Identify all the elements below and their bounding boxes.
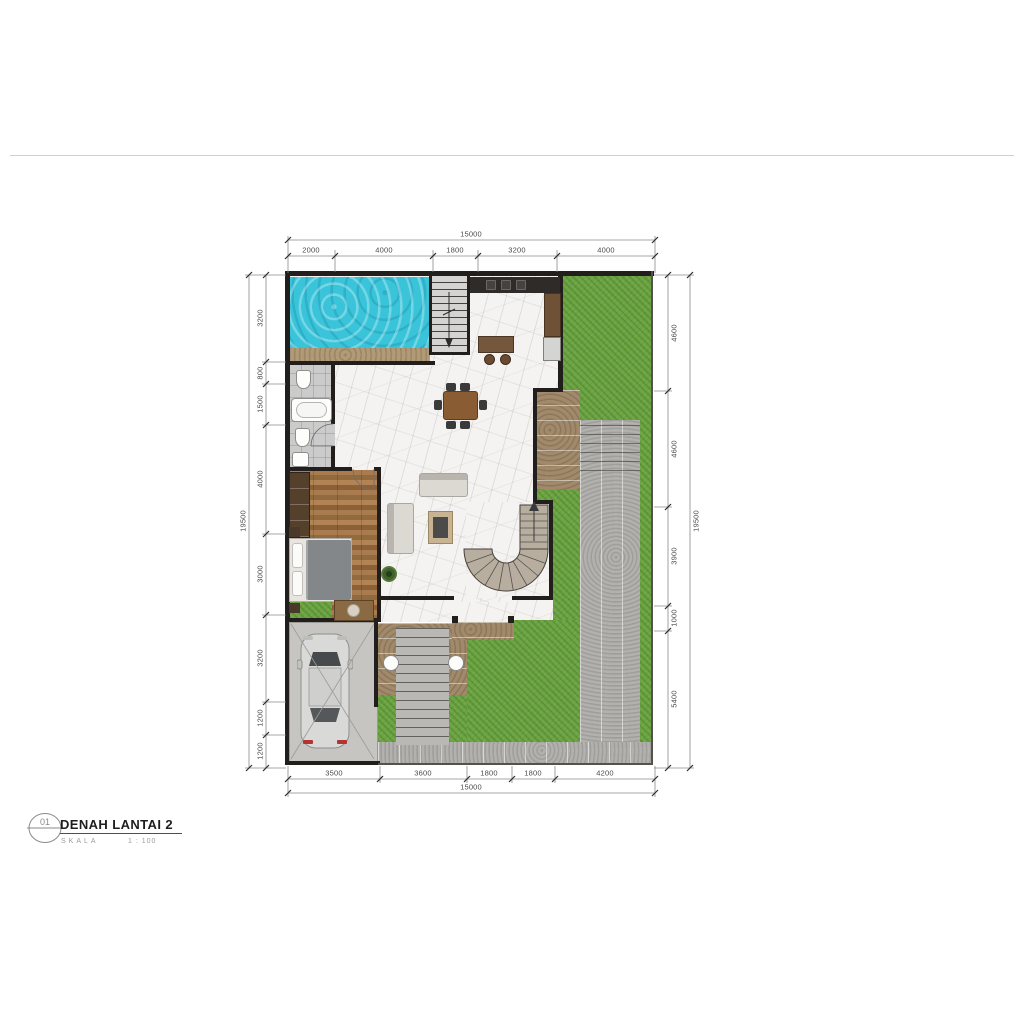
- dim-right-seg-4: 5400: [670, 690, 679, 708]
- dim-top-seg-3: 3200: [508, 246, 526, 255]
- dim-left-seg-4: 3000: [256, 565, 265, 583]
- drawing-number-text: 01: [40, 817, 50, 827]
- drawing-sheet: 15000 2000 4000 1800 3200 4000 3500 3600…: [0, 0, 1024, 1024]
- drawing-number-symbol: 01: [26, 812, 64, 846]
- scale-value: 1 : 100: [128, 838, 156, 845]
- dim-top-total: 15000: [460, 230, 482, 239]
- dim-right-seg-2: 3900: [670, 547, 679, 565]
- dim-bottom-seg-4: 4200: [596, 769, 614, 778]
- dim-left-seg-1: 800: [256, 366, 265, 379]
- dim-top-seg-2: 1800: [446, 246, 464, 255]
- dim-left-total: 19500: [239, 510, 248, 532]
- dim-left-seg-2: 1500: [256, 395, 265, 413]
- dim-right-seg-1: 4600: [670, 440, 679, 458]
- dim-left-seg-7: 1200: [256, 742, 265, 760]
- dim-bottom-seg-1: 3600: [414, 769, 432, 778]
- dim-right-seg-3: 1000: [670, 609, 679, 627]
- dim-bottom-seg-2: 1800: [480, 769, 498, 778]
- dim-left-seg-0: 3200: [256, 309, 265, 327]
- scale-label: SKALA: [61, 838, 99, 845]
- dimension-linework: [0, 0, 1024, 1024]
- title-underline: [60, 833, 182, 834]
- dim-left-seg-3: 4000: [256, 470, 265, 488]
- dim-top-seg-0: 2000: [302, 246, 320, 255]
- dim-left-seg-6: 1200: [256, 709, 265, 727]
- dim-top-seg-4: 4000: [597, 246, 615, 255]
- dim-right-total: 19500: [692, 510, 701, 532]
- dim-bottom-seg-3: 1800: [524, 769, 542, 778]
- drawing-title: DENAH LANTAI 2: [60, 817, 173, 832]
- dim-bottom-total: 15000: [460, 783, 482, 792]
- dim-top-seg-1: 4000: [375, 246, 393, 255]
- dim-left-seg-5: 3200: [256, 649, 265, 667]
- dim-bottom-seg-0: 3500: [325, 769, 343, 778]
- dim-right-seg-0: 4600: [670, 324, 679, 342]
